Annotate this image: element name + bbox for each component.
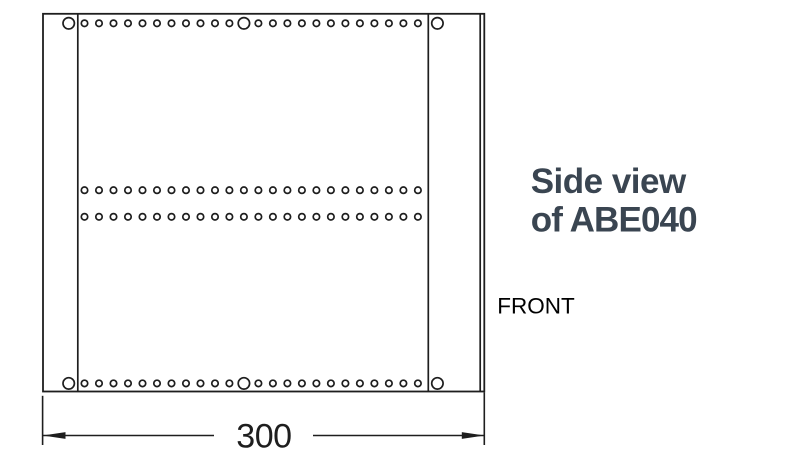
svg-text:300: 300 (236, 418, 291, 455)
svg-text:of ABE040: of ABE040 (531, 200, 697, 239)
svg-text:FRONT: FRONT (497, 293, 575, 318)
svg-text:Side view: Side view (531, 162, 687, 201)
